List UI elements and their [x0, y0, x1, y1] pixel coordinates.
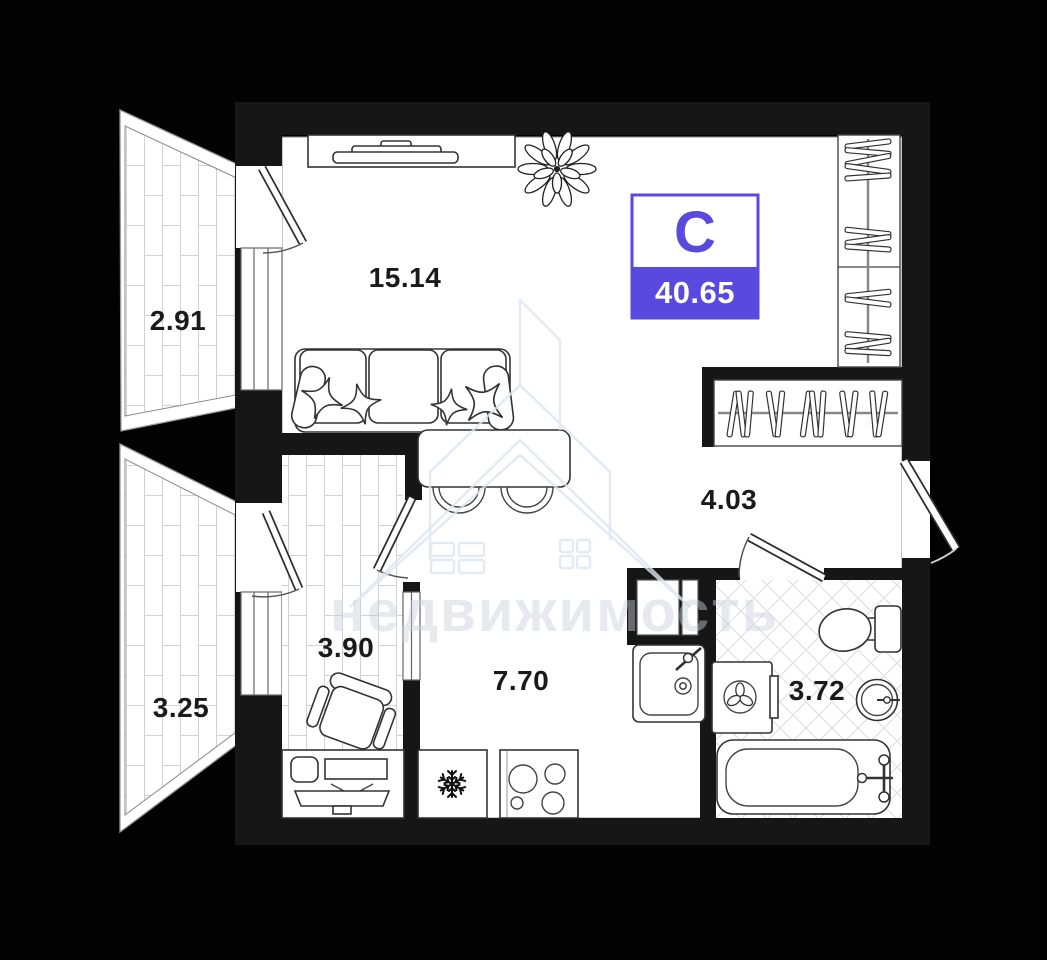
- washing-machine-icon: [712, 662, 778, 733]
- kitchen-sink-icon: [633, 645, 705, 722]
- window-office-balcony: [241, 592, 282, 695]
- wardrobe-hall: [714, 380, 902, 446]
- watermark-text: недвижимость: [330, 579, 779, 644]
- label-balcony-top-area: 2.91: [150, 305, 207, 336]
- bathtub-icon: [717, 740, 893, 814]
- stove-burners-icon: [500, 750, 578, 818]
- faucet-icon: [858, 774, 867, 783]
- keyboard-icon: [295, 791, 389, 806]
- apartment-type-badge: С 40.65: [632, 195, 758, 318]
- badge-total-area: 40.65: [655, 275, 735, 310]
- sofa-icon: [289, 349, 518, 436]
- floor-plan: недвижимость С 40.65 2.91 15.14 3.25 3.9…: [0, 0, 1047, 960]
- label-living-area: 15.14: [369, 262, 442, 293]
- label-bath-area: 3.72: [789, 675, 846, 706]
- window-living-balcony: [241, 248, 282, 390]
- desk-icon: [282, 750, 404, 818]
- tv-stand: [308, 135, 515, 167]
- floorplan-screenshot: недвижимость С 40.65 2.91 15.14 3.25 3.9…: [0, 0, 1047, 960]
- label-kitchen-area: 7.70: [493, 665, 550, 696]
- label-office-area: 3.90: [318, 632, 375, 663]
- badge-type-letter: С: [674, 200, 716, 265]
- label-balcony-bottom-area: 3.25: [153, 692, 210, 723]
- balcony-top: [120, 110, 241, 431]
- left-wall: [235, 102, 282, 818]
- wardrobe-top: [838, 135, 900, 367]
- monitor-icon: [325, 759, 387, 779]
- speaker-icon: [291, 757, 318, 782]
- label-hall-area: 4.03: [701, 484, 758, 515]
- fridge-icon: [418, 750, 487, 818]
- faucet-icon: [684, 654, 693, 663]
